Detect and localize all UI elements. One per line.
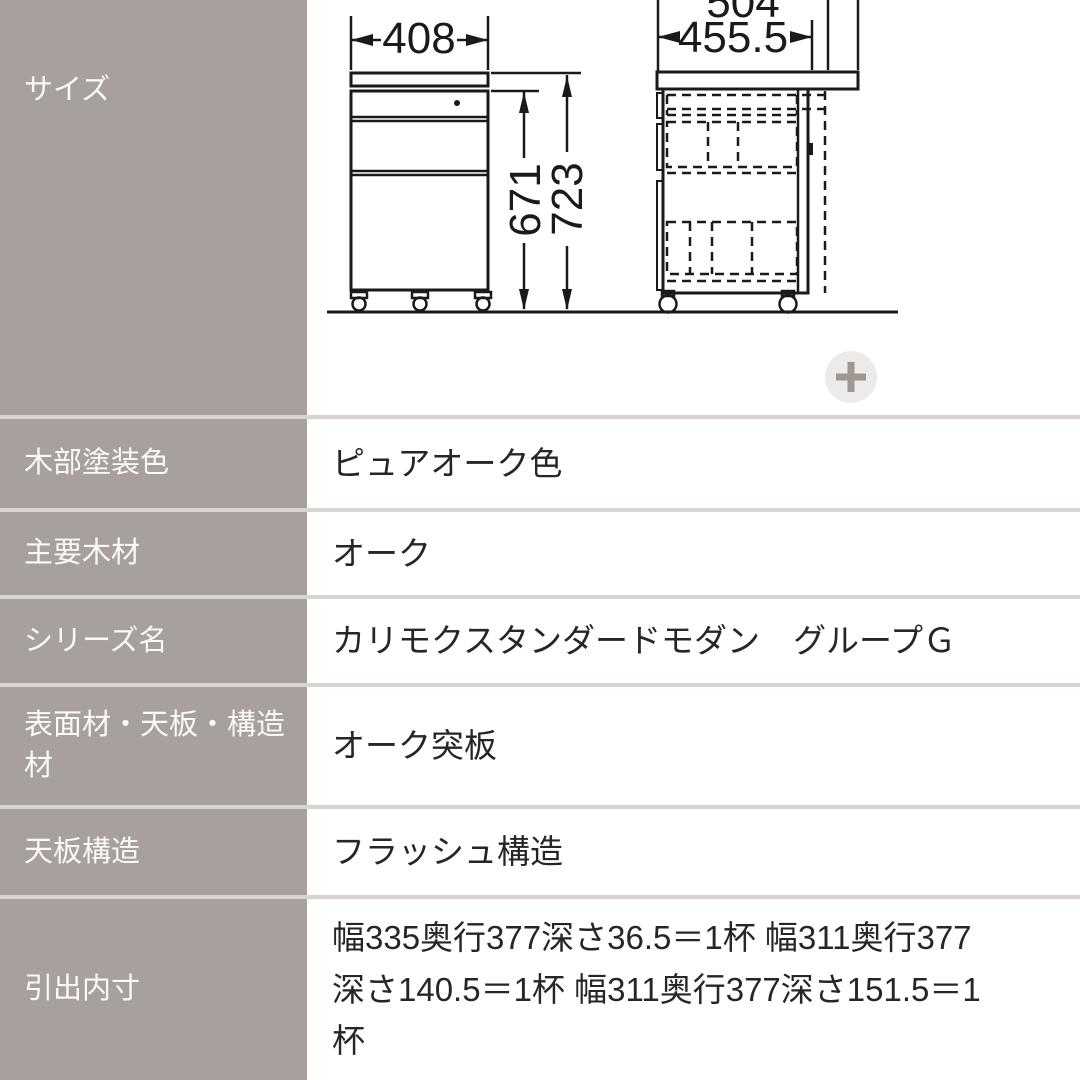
front-height-total-label: 723 (543, 162, 592, 235)
spec-value-cell: オーク突板 (312, 687, 1080, 805)
spec-label: 表面材・天板・構造材 (0, 687, 307, 805)
spec-row-wood-paint-color: 木部塗装色 ピュアオーク色 (0, 419, 1080, 508)
spec-row-surface-material: 表面材・天板・構造材 オーク突板 (0, 687, 1080, 805)
spec-label-text: 表面材・天板・構造材 (24, 705, 289, 786)
side-depth-overall-label: 504 (706, 0, 779, 27)
front-casters (351, 292, 491, 311)
spec-row-drawer-inner-dimensions: 引出内寸 幅335奥行377深さ36.5＝1杯 幅311奥行377深さ140.5… (0, 899, 1080, 1080)
spec-value-text: ピュアオーク色 (332, 438, 562, 489)
spec-row-size: サイズ (0, 0, 1080, 415)
plus-icon (825, 351, 877, 403)
front-width-label: 408 (382, 14, 455, 63)
side-view (657, 72, 858, 313)
spec-row-top-board-structure: 天板構造 フラッシュ構造 (0, 809, 1080, 895)
product-spec-table: サイズ (0, 0, 1080, 1080)
spec-value-text: カリモクスタンダードモダン グループＧ (332, 615, 956, 666)
spec-label-text: シリーズ名 (24, 621, 168, 662)
spec-label-text: 主要木材 (24, 533, 140, 574)
dimension-diagram: 408 671 723 455.5 504 (315, 0, 1075, 415)
spec-row-series-name: シリーズ名 カリモクスタンダードモダン グループＧ (0, 599, 1080, 683)
spec-label-size: サイズ (0, 0, 307, 415)
spec-label: 引出内寸 (0, 899, 307, 1080)
zoom-in-button[interactable] (825, 351, 877, 403)
spec-value-text: オーク (332, 528, 431, 579)
spec-row-main-wood: 主要木材 オーク (0, 512, 1080, 595)
spec-value-cell: フラッシュ構造 (312, 809, 1080, 895)
spec-value-cell: ピュアオーク色 (312, 419, 1080, 508)
spec-label: シリーズ名 (0, 599, 307, 683)
keyhole (454, 100, 460, 106)
size-diagram-cell: 408 671 723 455.5 504 (307, 0, 1080, 415)
spec-label-text: 木部塗装色 (24, 443, 169, 484)
spec-label: 木部塗装色 (0, 419, 307, 508)
handle (807, 143, 813, 155)
spec-label-text: 引出内寸 (24, 969, 140, 1010)
spec-value-cell: カリモクスタンダードモダン グループＧ (312, 599, 1080, 683)
spec-label-text: サイズ (24, 70, 110, 111)
spec-value-text: フラッシュ構造 (332, 826, 563, 877)
spec-label-text: 天板構造 (24, 832, 140, 873)
spec-value-cell: 幅335奥行377深さ36.5＝1杯 幅311奥行377深さ140.5＝1杯 幅… (312, 899, 1080, 1080)
spec-value-text: 幅335奥行377深さ36.5＝1杯 幅311奥行377深さ140.5＝1杯 幅… (332, 912, 992, 1066)
spec-label: 天板構造 (0, 809, 307, 895)
front-view (351, 73, 491, 311)
spec-label: 主要木材 (0, 512, 307, 595)
spec-value-cell: オーク (312, 512, 1080, 595)
spec-value-text: オーク突板 (332, 720, 497, 771)
drawer-internals (667, 91, 825, 293)
